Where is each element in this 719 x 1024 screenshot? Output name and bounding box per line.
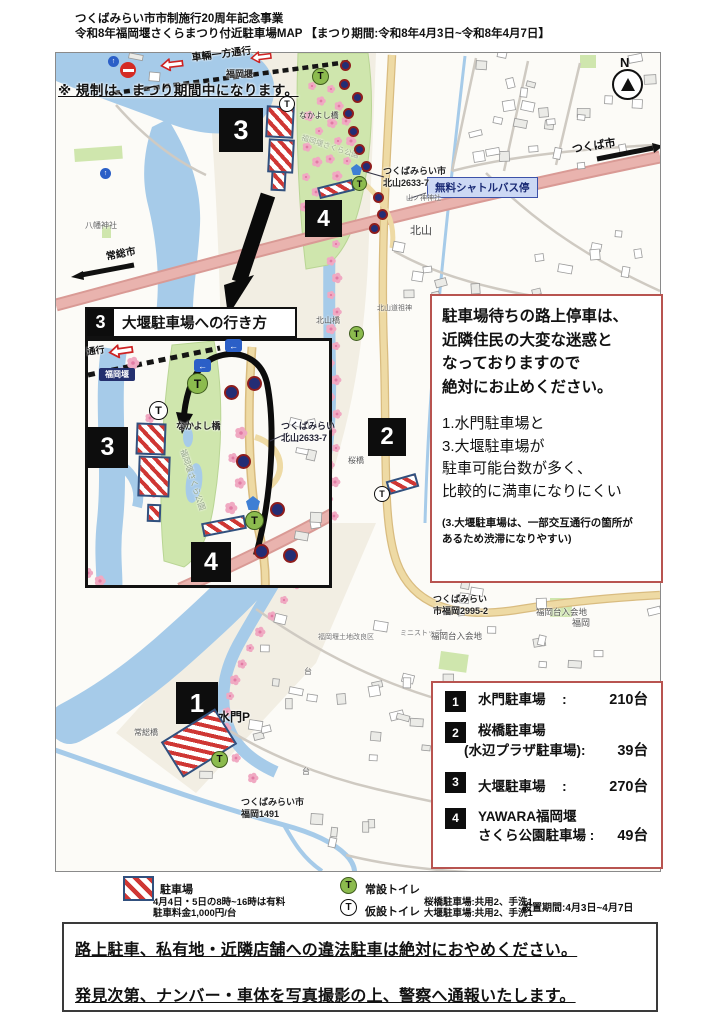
page-title-line2: 令和8年福岡堰さくらまつり付近駐車場MAP 【まつり期間:令和8年4月3日~令和… — [75, 27, 550, 43]
parking-area-hatch — [135, 422, 166, 455]
parking-swatch-icon — [123, 876, 154, 901]
warning-line: 3.大堰駐車場が — [442, 436, 651, 459]
permanent-toilet-icon: T — [211, 751, 228, 768]
building — [529, 146, 539, 152]
parking-area-hatch — [137, 455, 170, 497]
no-entry-sign-icon — [120, 62, 136, 78]
inset-title-text: 大堰駐車場への行き方 — [122, 312, 267, 333]
building — [331, 827, 338, 837]
no-parking-sign-icon — [254, 544, 269, 559]
warning-line: 近隣住民の大変な迷惑と — [442, 329, 651, 353]
map-label-joso-bridge: 常総橋 — [134, 728, 158, 738]
map-label-sakura-bridge: 桜橋 — [348, 456, 364, 466]
building — [546, 119, 555, 125]
building — [410, 718, 423, 727]
map-label-fukuoka-weir: 福岡堰 — [226, 69, 253, 81]
parking-name: 水門駐車場 — [478, 690, 546, 710]
bottom-warning-line1: 路上駐車、私有地・近隣店舗への違法駐車は絶対におやめください。 — [75, 936, 646, 960]
map-label-nakayoshi-bridge: なかよし橋 — [299, 111, 339, 121]
permanent-toilet-icon: T — [349, 326, 364, 341]
building — [577, 162, 585, 169]
compass-label: N — [620, 55, 629, 70]
no-parking-sign-icon — [270, 502, 285, 517]
legend-fee-line2: 駐車料金1,000円/台 — [153, 908, 236, 921]
map-badge-3: 3 — [219, 108, 263, 152]
building — [363, 822, 369, 832]
map-label-fukuokadai-iriaichi-1: 福岡台入会地 — [431, 631, 482, 642]
traffic-sign-icon: ↑ — [108, 56, 119, 67]
building — [337, 693, 346, 704]
building — [328, 837, 337, 848]
temporary-toilet-icon: T — [374, 486, 390, 502]
building — [493, 116, 503, 124]
map-label-kitayama-bridge: 北山橋 — [316, 316, 340, 326]
warning-box: 駐車場待ちの路上停車は、 近隣住民の大変な迷惑と なっておりますので 絶対にお止… — [430, 294, 663, 583]
building — [260, 645, 269, 652]
inset-badge-3: 3 — [87, 427, 128, 468]
parking-name2: さくら公園駐車場 : — [478, 826, 594, 846]
building — [404, 290, 414, 298]
building — [473, 151, 486, 163]
building — [471, 283, 480, 294]
warning-line: 駐車可能台数が多く、 — [442, 458, 651, 481]
warning-note: あるため渋滞になりやすい) — [442, 532, 651, 548]
map-label-fukuokadai-iriaichi-2: 福岡台入会地 — [536, 607, 587, 618]
warning-line: なっておりますので — [442, 352, 651, 376]
no-parking-sign-icon — [348, 126, 359, 137]
flyer-page: { "colors":{ "accent_red_border":"#b8545… — [0, 0, 719, 1024]
building — [535, 254, 544, 262]
building — [615, 231, 622, 238]
parking-area-hatch — [267, 138, 295, 173]
map-label-inset-nakayoshi: なかよし橋 — [176, 421, 221, 433]
map-label-yamanokami-shrine: 山ノ神神社 — [406, 194, 441, 203]
permanent-toilet-icon: T — [312, 68, 329, 85]
building — [538, 108, 548, 118]
building — [594, 651, 603, 657]
building — [307, 694, 318, 702]
no-parking-sign-icon — [339, 79, 350, 90]
building — [502, 100, 515, 112]
parking-area-hatch — [270, 171, 286, 192]
permanent-toilet-icon: T — [187, 373, 208, 394]
legend-toilet-note2: 大堰駐車場:共用2、手洗1 — [424, 908, 533, 921]
one-way-arrow-icon — [246, 48, 275, 63]
inset-badge-4: 4 — [191, 542, 231, 582]
building — [423, 266, 432, 273]
no-parking-sign-icon — [343, 108, 354, 119]
no-parking-sign-icon — [224, 385, 239, 400]
bottom-warning-box: 路上駐車、私有地・近隣店舗への違法駐車は絶対におやめください。 発見次第、ナンバ… — [62, 922, 658, 1012]
no-parking-sign-icon — [373, 192, 384, 203]
map-label-dai-2: 台 — [302, 767, 310, 777]
parking-row-badge: 1 — [445, 691, 466, 712]
parking-row-badge: 4 — [445, 808, 466, 829]
building — [644, 75, 656, 85]
map-label-inset-address: つくばみらい 北山2633-7 — [281, 421, 335, 444]
parking-row: 3 大堰駐車場:270台 — [445, 771, 648, 798]
map-label-address-fukuoka2995: つくばみらい 市福岡2995-2 — [433, 594, 488, 617]
parking-row: 1 水門駐車場:210台 — [445, 690, 648, 712]
no-parking-sign-icon — [236, 454, 251, 469]
restriction-note: ※ 規制は、まつり期間中になります。 — [58, 79, 299, 99]
no-parking-sign-icon — [361, 161, 372, 172]
inset-weir-chip: 福岡堰 — [99, 368, 135, 381]
map-label-land-improvement: 福岡堰土地改良区 — [318, 633, 374, 642]
permanent-toilet-icon: T — [352, 176, 367, 191]
building — [403, 678, 411, 688]
building — [634, 249, 642, 259]
no-parking-sign-icon — [340, 60, 351, 71]
map-badge-2: 2 — [368, 418, 406, 456]
parking-count: 210台 — [609, 690, 648, 711]
page-title-line1: つくばみらい市市制施行20周年記念事業 — [75, 12, 283, 28]
parking-count: 39台 — [617, 741, 648, 762]
map-label-kitayama-dosojin: 北山道祖神 — [377, 304, 412, 313]
parking-area-hatch — [147, 504, 162, 522]
building — [200, 771, 213, 778]
building — [368, 685, 381, 697]
inset-title-bar: 3 大堰駐車場への行き方 — [85, 307, 297, 338]
warning-line: 比較的に満車になりにくい — [442, 481, 651, 504]
one-way-sign-icon: ← — [225, 339, 242, 352]
legend-permanent-toilet: 常設トイレ — [365, 881, 420, 897]
building — [520, 88, 527, 98]
temporary-toilet-icon: T — [279, 96, 295, 112]
building — [577, 114, 585, 120]
building — [373, 620, 388, 632]
legend-parking-label: 駐車場 — [160, 881, 193, 897]
no-parking-sign-icon — [352, 92, 363, 103]
warning-note: (3.大堰駐車場は、一部交互通行の箇所が — [442, 516, 651, 532]
building — [369, 755, 377, 761]
map-badge-4: 4 — [305, 200, 342, 237]
map-label-dai-1: 台 — [304, 667, 312, 677]
parking-row: 4 YAWARA福岡堰 さくら公園駐車場 :49台 — [445, 807, 648, 848]
temporary-toilet-icon: T — [149, 401, 168, 420]
map-label-hachiman-shrine: 八幡神社 — [85, 221, 117, 231]
building — [539, 661, 547, 667]
parking-count: 49台 — [617, 826, 648, 847]
bottom-warning-line2: 発見次第、ナンバー・車体を写真撮影の上、警察へ通報いたします。 — [75, 982, 646, 1006]
building — [476, 61, 487, 70]
building — [632, 99, 642, 108]
building — [286, 699, 293, 709]
parking-list-box: 1 水門駐車場:210台 2 桜橋駐車場 (水辺プラザ駐車場):39台 3 大堰… — [431, 681, 663, 869]
parking-name: 桜橋駐車場 — [478, 721, 648, 741]
map-label-address-kitayama: つくばみらい市 北山2633-7 — [383, 166, 446, 189]
map-label-kitayama: 北山 — [410, 224, 432, 238]
inset-title-badge: 3 — [87, 309, 114, 336]
no-parking-sign-icon — [369, 223, 380, 234]
building — [487, 627, 495, 634]
map-label-address-fukuoka1491: つくばみらい市 福岡1491 — [241, 797, 304, 820]
building — [311, 813, 324, 824]
building — [248, 720, 263, 732]
no-parking-sign-icon — [283, 548, 298, 563]
parking-count: 270台 — [609, 777, 648, 798]
building — [422, 745, 431, 751]
parking-name2: (水辺プラザ駐車場): — [464, 741, 586, 761]
building — [412, 271, 424, 282]
building — [499, 151, 509, 161]
parking-row: 2 桜橋駐車場 (水辺プラザ駐車場):39台 — [445, 721, 648, 762]
building — [605, 96, 613, 104]
legend-period: 設置期間:4月3日~4月7日 — [522, 902, 633, 916]
parking-row-badge: 2 — [445, 722, 466, 743]
permanent-toilet-icon: T — [245, 511, 264, 530]
map-label-fukuoka: 福岡 — [572, 618, 590, 630]
no-parking-sign-icon — [354, 144, 365, 155]
parking-name: YAWARA福岡堰 — [478, 807, 648, 827]
building — [370, 732, 381, 742]
compass-icon — [612, 69, 643, 100]
building — [621, 266, 630, 277]
building — [568, 660, 582, 668]
warning-line: 1.水門駐車場と — [442, 413, 651, 436]
permanent-toilet-icon: T — [340, 877, 357, 894]
building — [310, 512, 322, 522]
one-way-sign-icon: ← — [194, 359, 211, 372]
temporary-toilet-icon: T — [340, 899, 357, 916]
warning-line: 絶対にお止めください。 — [442, 376, 651, 400]
legend-temporary-toilet: 仮設トイレ — [365, 903, 420, 919]
building — [272, 679, 279, 687]
parking-row-badge: 3 — [445, 772, 466, 793]
warning-line: 駐車場待ちの路上停車は、 — [442, 305, 651, 329]
building — [590, 249, 600, 260]
no-parking-sign-icon — [247, 376, 262, 391]
no-parking-sign-icon — [377, 209, 388, 220]
traffic-sign-icon: ↑ — [100, 168, 111, 179]
building — [392, 241, 405, 252]
parking-name: 大堰駐車場 — [478, 777, 546, 797]
